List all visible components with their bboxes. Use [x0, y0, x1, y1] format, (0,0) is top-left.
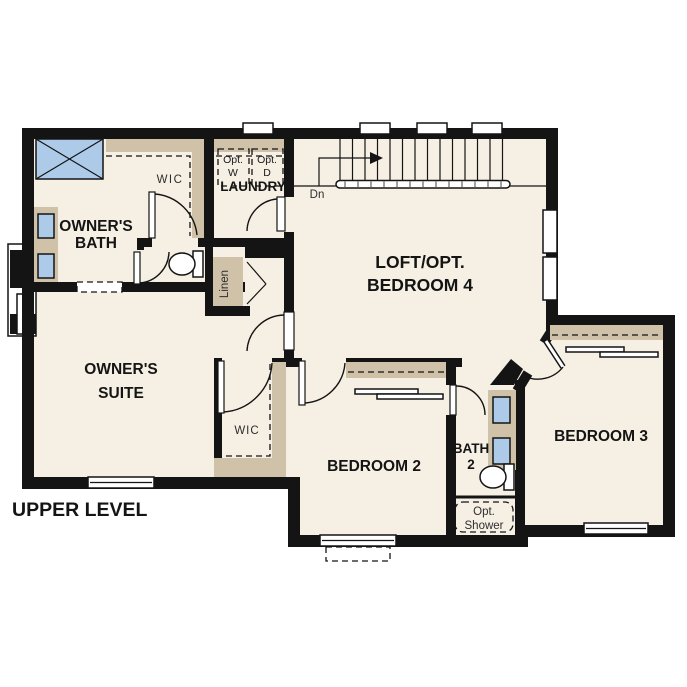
room-label-bath2: BATH [453, 441, 490, 456]
room-label-owners-suite: OWNER'S [84, 361, 157, 378]
wall-hall-mid [284, 232, 294, 312]
opt-shower-label: Opt. [473, 506, 495, 518]
wall-wc-top-right [198, 238, 245, 247]
door-leaf-laundry [277, 197, 285, 231]
door-leaf-bedroom2 [299, 361, 305, 405]
wall-bedroom2-right-a [446, 358, 456, 385]
sink-icon [493, 438, 510, 464]
sink-icon [38, 254, 54, 278]
wic-bath-shelf-top [106, 139, 204, 152]
window [543, 210, 557, 253]
wall-hall-chunk [245, 238, 284, 258]
room-label-bedroom2: BEDROOM 2 [327, 458, 421, 475]
wic-suite-shelf-bottom [214, 458, 286, 477]
bedroom2-closet-slider-2 [377, 394, 443, 399]
opt-shower-label: Shower [465, 520, 504, 532]
opt-dryer-label: D [263, 167, 271, 179]
window [360, 123, 390, 134]
room-label-loft: BEDROOM 4 [367, 275, 473, 295]
wall-bath-suite-a [22, 282, 77, 292]
window [417, 123, 447, 134]
wall-bath-laundry [204, 128, 214, 238]
opt-dryer-label: Opt. [257, 154, 277, 166]
wall-bedroom3-top [546, 315, 675, 325]
wall-bedroom3-right [663, 315, 675, 537]
opt-washer-label: W [228, 167, 238, 179]
plan-title: UPPER LEVEL [12, 499, 148, 521]
bedroom3-closet-slider-2 [600, 352, 658, 357]
room-label-bath2: 2 [467, 457, 475, 472]
room-label-owners-bath: BATH [75, 235, 117, 252]
wall-left [22, 128, 34, 489]
room-label-owners-suite: SUITE [98, 385, 144, 402]
wall-wc-left [137, 238, 144, 250]
window [543, 257, 557, 300]
bedroom2-closet-shelf [346, 362, 446, 378]
room-label-owners-bath: OWNER'S [59, 218, 132, 235]
optional-window-box [326, 547, 390, 561]
opt-washer-label: Opt. [223, 154, 243, 166]
room-label-loft: LOFT/OPT. [375, 252, 464, 272]
toilet-icon [169, 253, 195, 275]
cased-opening [77, 282, 122, 292]
floor-plan: OWNER'S BATH WIC LAUNDRY Opt. W Opt. D D… [0, 0, 687, 687]
wall-suite-bottom [22, 477, 300, 489]
window [472, 123, 502, 134]
sink-icon [38, 214, 54, 238]
linen-label: Linen [219, 270, 231, 298]
floor-plan-drawing: OWNER'S BATH WIC LAUNDRY Opt. W Opt. D D… [0, 0, 687, 687]
wall-linen-left [205, 247, 213, 309]
stairs-down-label: Dn [310, 189, 325, 201]
window [243, 123, 273, 134]
wall-linen-bottom [205, 306, 250, 316]
door-leaf-wic-bath [149, 192, 155, 238]
bedroom3-closet-shelf [550, 325, 663, 340]
room-label-laundry: LAUNDRY [220, 179, 286, 194]
room-label-wic-bath: WIC [157, 174, 184, 186]
door-leaf-bath2 [450, 385, 456, 415]
sink-icon [493, 397, 510, 423]
door-leaf-wic-suite [218, 361, 224, 413]
door-leaf-owners-suite [284, 312, 294, 350]
door-leaf-wc [134, 252, 140, 284]
room-label-bedroom3: BEDROOM 3 [554, 428, 648, 445]
room-label-wic-suite: WIC [234, 425, 259, 437]
wic-suite-shelf-right [272, 362, 286, 474]
toilet-icon [480, 466, 506, 488]
